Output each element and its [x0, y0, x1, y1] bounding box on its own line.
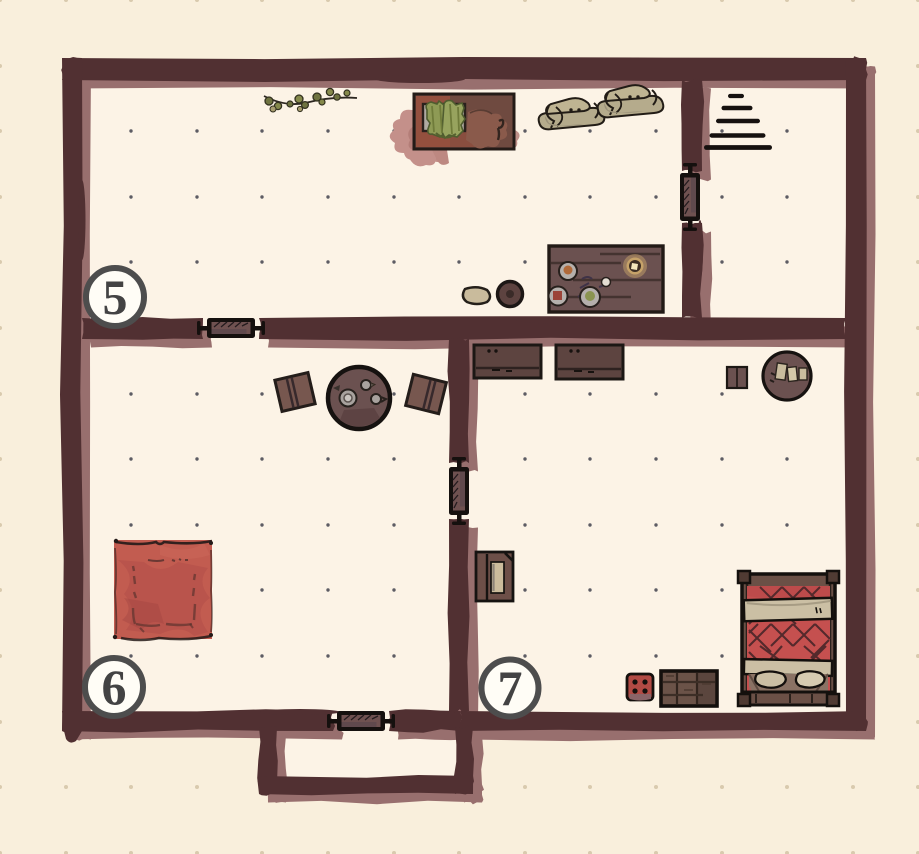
svg-text:7: 7 — [498, 660, 523, 716]
svg-text:6: 6 — [102, 659, 127, 715]
svg-text:5: 5 — [103, 269, 128, 325]
